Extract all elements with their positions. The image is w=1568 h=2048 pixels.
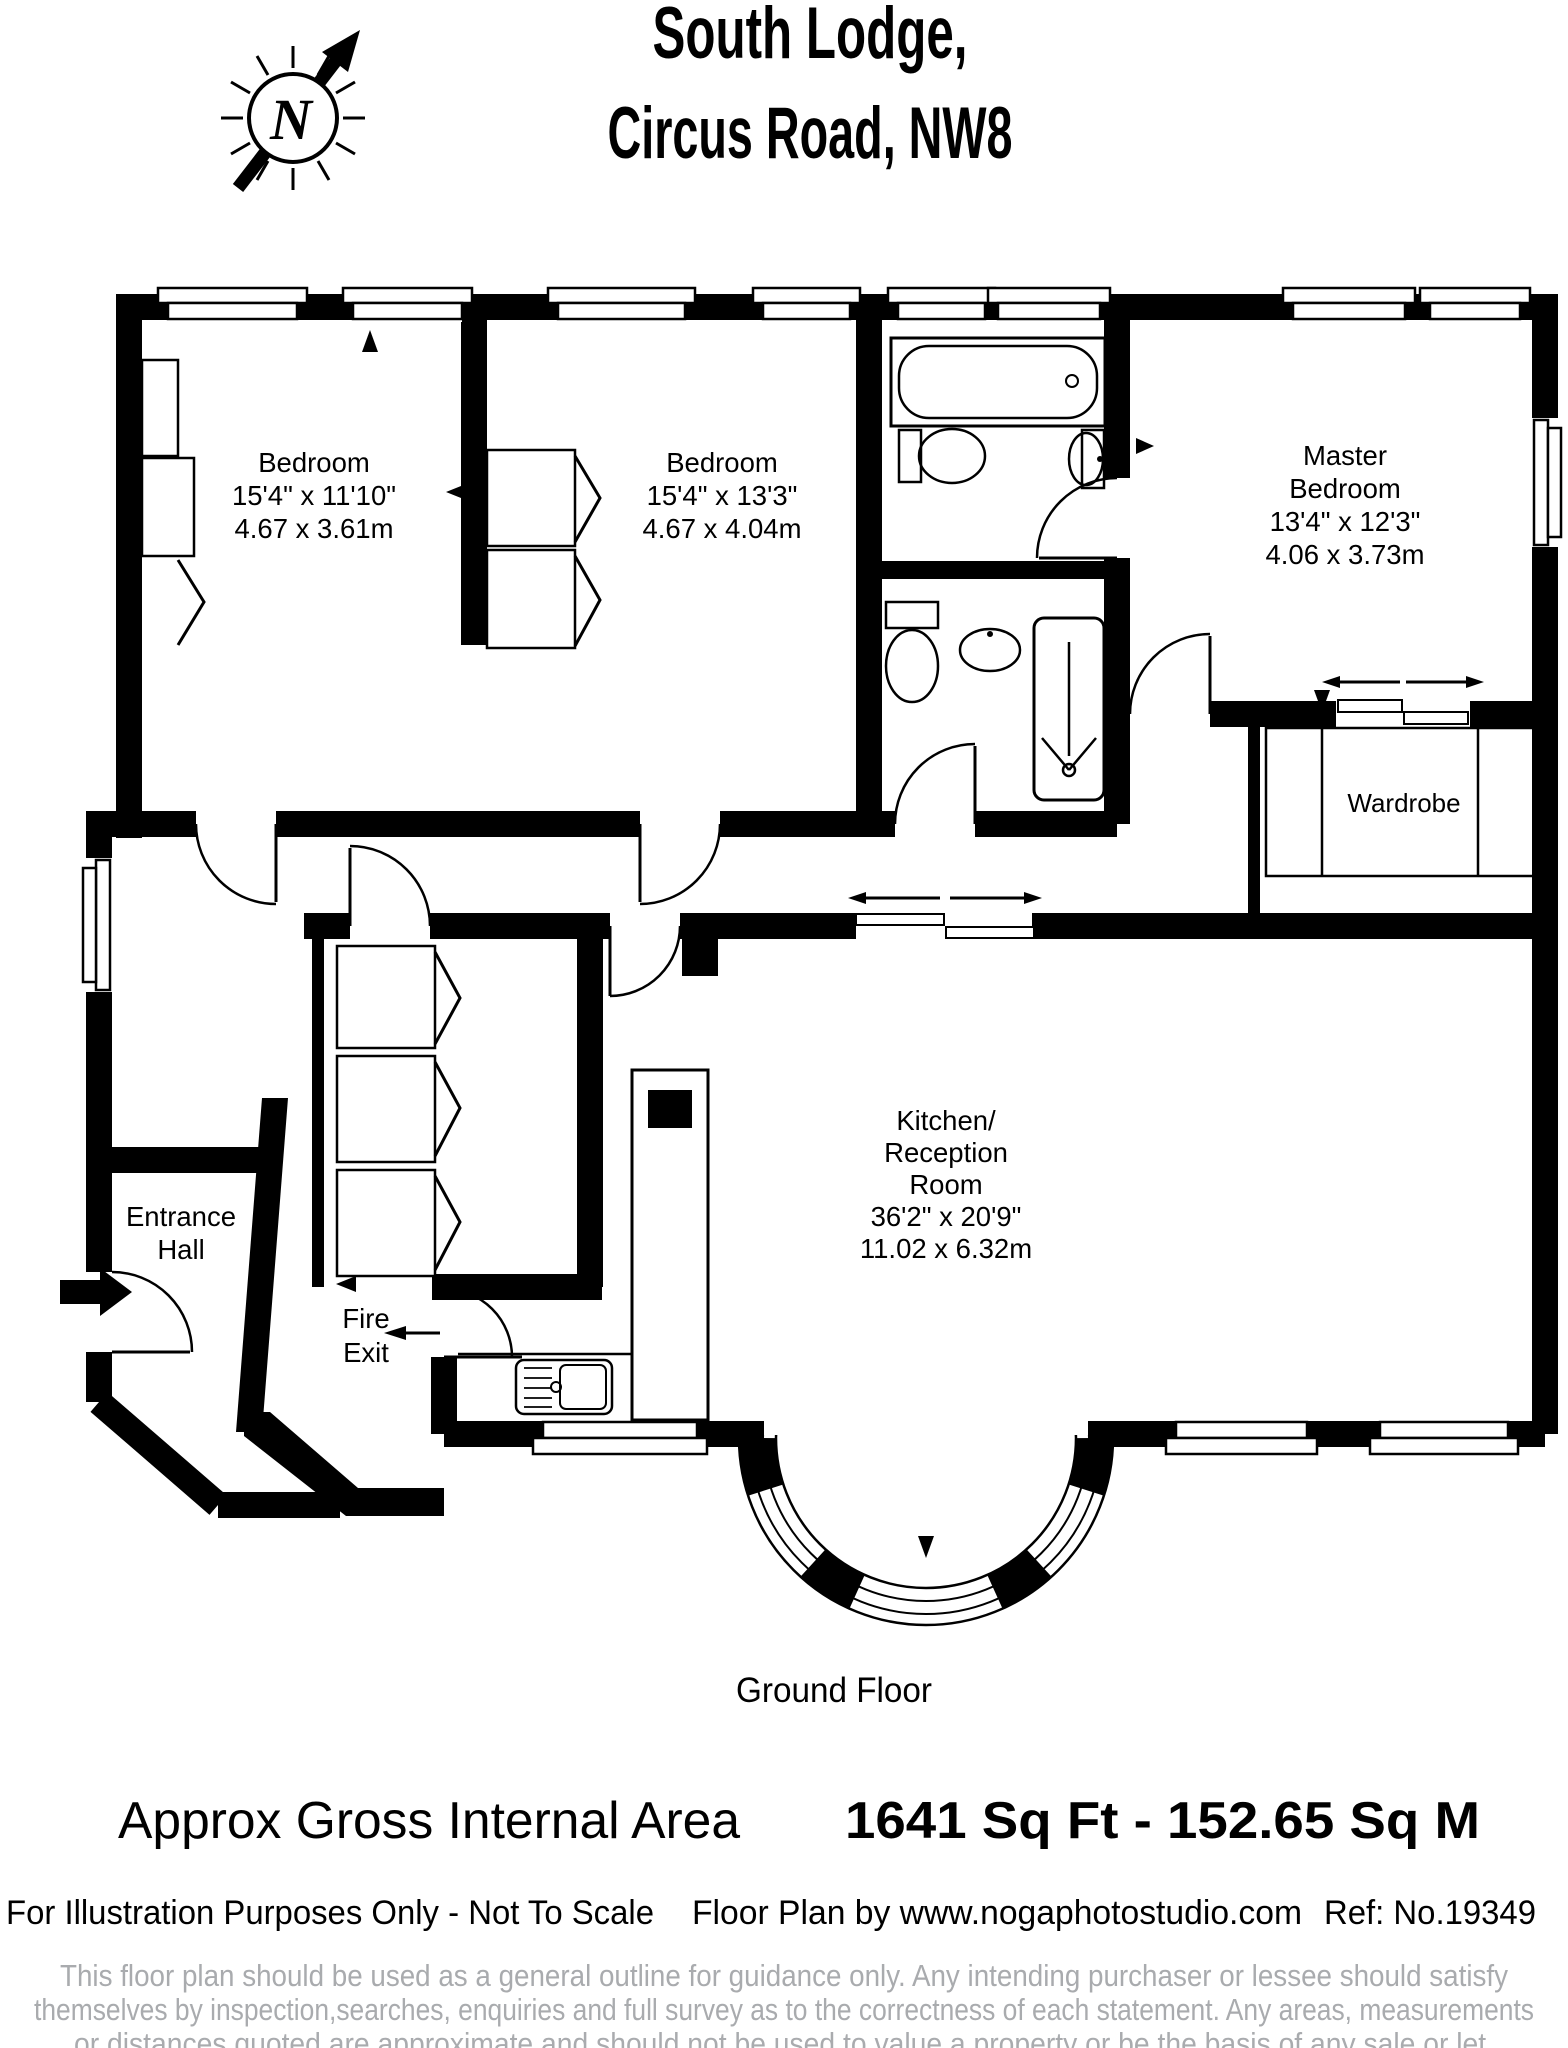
bathtub	[891, 338, 1105, 426]
window-top-4	[753, 288, 860, 322]
bedroom2-label: Bedroom	[666, 447, 778, 478]
marker-bay	[918, 1536, 934, 1558]
kitchen-label-line2: Reception	[884, 1137, 1008, 1168]
window-top-3	[548, 288, 695, 322]
marker-lobby	[336, 1276, 356, 1292]
bedroom1-label: Bedroom	[258, 447, 370, 478]
closet-bedroom1-left	[142, 360, 204, 645]
sliding-door-wardrobe	[1322, 676, 1484, 724]
area-value: 1641 Sq Ft - 152.65 Sq M	[845, 1792, 1480, 1850]
door-arc-bedroom2	[640, 824, 720, 904]
master-imperial: 13'4" x 12'3"	[1270, 506, 1421, 537]
window-top-1	[158, 288, 307, 322]
door-arc-lobby	[350, 846, 430, 926]
fire-exit-label-line1: Fire	[342, 1303, 389, 1334]
window-bottom-3	[1370, 1420, 1518, 1454]
bedroom2-metric: 4.67 x 4.04m	[643, 513, 802, 544]
kitchen-label-line3: Room	[909, 1169, 982, 1200]
door-arc-bedroom1	[196, 824, 276, 904]
entrance-arrow-icon	[60, 1268, 132, 1316]
window-right	[1532, 418, 1561, 547]
footer-credit: Floor Plan by www.nogaphotostudio.com	[692, 1894, 1302, 1932]
shower-bathroom2	[1034, 618, 1104, 800]
toilet-ensuite	[899, 429, 985, 483]
disclaimer-line3: or distances quoted are approximate and …	[74, 2026, 1494, 2048]
kitchen-sink	[458, 1354, 632, 1414]
master-label-line1: Master	[1303, 440, 1387, 471]
kitchen-label-line1: Kitchen/	[896, 1105, 996, 1136]
bay-window	[733, 1244, 1119, 1625]
toilet-bathroom2	[886, 602, 938, 702]
disclaimer-line2: themselves by inspection,searches, enqui…	[34, 1992, 1534, 2027]
bay-wall-segments	[758, 1438, 1094, 1592]
door-arc-master	[1130, 634, 1210, 714]
window-top-8	[1420, 288, 1530, 322]
kitchen-imperial: 36'2" x 20'9"	[871, 1201, 1022, 1232]
window-top-5	[888, 288, 995, 322]
window-bottom-2	[1166, 1420, 1317, 1454]
fire-exit-arrow-icon	[384, 1326, 440, 1340]
bedroom1-imperial: 15'4" x 11'10"	[232, 480, 396, 511]
door-arc-bathroom2	[895, 744, 975, 824]
window-top-7	[1283, 288, 1415, 322]
bedroom1-metric: 4.67 x 3.61m	[235, 513, 394, 544]
closet-lobby	[337, 946, 460, 1276]
marker-bedroom1-right	[446, 484, 466, 500]
door-arc-kitchen	[610, 926, 680, 996]
compass-n-label: N	[269, 87, 314, 152]
master-metric: 4.06 x 3.73m	[1266, 539, 1425, 570]
window-top-6	[988, 288, 1110, 322]
door-arc-entrance	[112, 1272, 192, 1352]
marker-bedroom1-top	[362, 330, 378, 352]
kitchen-metric: 11.02 x 6.32m	[860, 1233, 1032, 1264]
window-left	[83, 858, 112, 992]
kitchen-island	[632, 1070, 708, 1420]
fire-exit-label-line2: Exit	[343, 1337, 389, 1368]
window-top-2	[343, 288, 472, 322]
entrance-hall-label-line2: Hall	[157, 1234, 204, 1265]
floorplan-page: N	[0, 0, 1568, 2048]
closet-bedroom2-left	[487, 450, 600, 648]
footer-note: For Illustration Purposes Only - Not To …	[6, 1894, 654, 1932]
bedroom2-imperial: 15'4" x 13'3"	[647, 480, 798, 511]
entrance-hall-label-line1: Entrance	[126, 1201, 236, 1232]
door-arc-ensuite	[1037, 478, 1117, 558]
basin-bathroom2	[960, 629, 1020, 671]
floor-label: Ground Floor	[736, 1671, 932, 1710]
disclaimer-line1: This floor plan should be used as a gene…	[60, 1958, 1508, 1993]
wardrobe-label: Wardrobe	[1347, 788, 1460, 818]
master-label-line2: Bedroom	[1289, 473, 1401, 504]
page-title-line2: Circus Road, NW8	[608, 93, 1013, 174]
window-bottom-1	[533, 1420, 707, 1454]
page-title-line1: South Lodge,	[653, 0, 968, 74]
marker-master	[1136, 438, 1154, 454]
floorplan-drawing: N	[0, 0, 1568, 2048]
area-label: Approx Gross Internal Area	[118, 1792, 740, 1850]
sliding-door-kitchen	[848, 892, 1042, 938]
footer-reference: Ref: No.19349	[1324, 1894, 1536, 1932]
north-compass-icon: N	[221, 30, 365, 190]
